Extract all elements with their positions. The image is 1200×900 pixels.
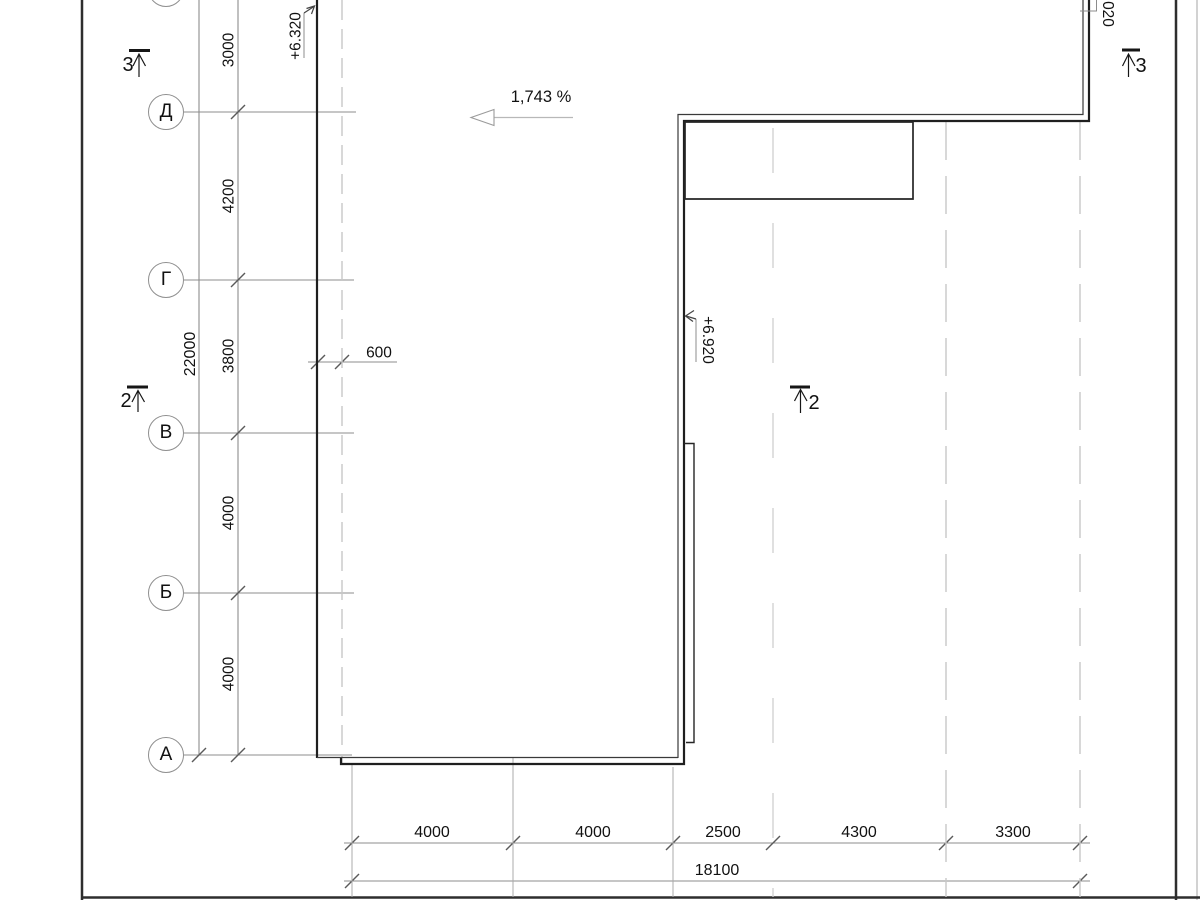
elev-mid-leader bbox=[686, 311, 697, 363]
wall-strip bbox=[684, 444, 694, 743]
dim-bottom-2500: 2500 bbox=[705, 825, 741, 841]
axis-bubble-d: Д bbox=[148, 94, 184, 130]
slope-arrow-head-icon bbox=[471, 110, 494, 126]
dim-overhang-600: 600 bbox=[366, 345, 392, 361]
dim-bottom-3300: 3300 bbox=[995, 825, 1031, 841]
dim-bottom-4000a: 4000 bbox=[414, 825, 450, 841]
dim-left-4000b: 4000 bbox=[221, 657, 237, 691]
axis-label-b: Б bbox=[160, 582, 172, 604]
dim-bottom-overall-18100: 18100 bbox=[695, 863, 740, 879]
section-label-left-2: 2 bbox=[120, 391, 131, 411]
section-label-left-3: 3 bbox=[122, 55, 133, 75]
slope-label: 1,743 % bbox=[511, 89, 572, 106]
roof-outline-thin bbox=[317, 0, 1083, 758]
dim-left-4200: 4200 bbox=[221, 179, 237, 213]
section-marker-right-2 bbox=[790, 387, 810, 413]
axis-label-a: А bbox=[160, 744, 173, 766]
elev-left-label: +6.320 bbox=[288, 12, 304, 60]
elev-mid-label: +6.920 bbox=[699, 316, 715, 364]
dim-left-3800: 3800 bbox=[221, 339, 237, 373]
axis-bubble-b: Б bbox=[148, 575, 184, 611]
axis-label-g: Г bbox=[161, 269, 171, 291]
axis-bubble-a: А bbox=[148, 737, 184, 773]
elev-top-right-partial-label: 020 bbox=[1099, 1, 1115, 27]
axis-label-d: Д bbox=[160, 101, 173, 123]
dim-left-3000: 3000 bbox=[221, 33, 237, 67]
canopy-rect bbox=[685, 122, 913, 199]
axis-horizontal-lines bbox=[184, 112, 356, 755]
drawing-sheet: Д Г В Б А 3000 4200 3800 4000 4000 22000… bbox=[0, 0, 1200, 900]
dim-bottom-4000b: 4000 bbox=[575, 825, 611, 841]
dim-bottom-4300: 4300 bbox=[841, 825, 877, 841]
section-label-right-2: 2 bbox=[808, 393, 819, 413]
extension-lines bbox=[352, 758, 673, 897]
section-label-right-3: 3 bbox=[1135, 56, 1146, 76]
elev-left-leader bbox=[304, 6, 315, 58]
dim-left-4000a: 4000 bbox=[221, 496, 237, 530]
axis-label-v: В bbox=[160, 422, 173, 444]
axis-bubble-g: Г bbox=[148, 262, 184, 298]
axis-bubble-v: В bbox=[148, 415, 184, 451]
dim-left-overall-22000: 22000 bbox=[183, 332, 199, 377]
